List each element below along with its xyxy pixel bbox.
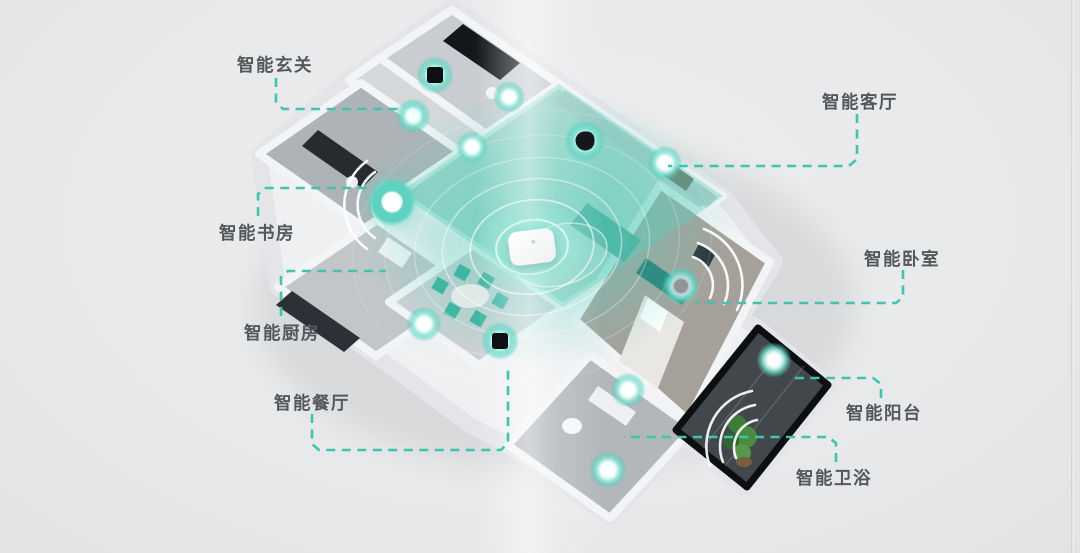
apartment-3d-render [0,0,1080,553]
smart-home-floorplan-scene: H 智能玄关智能客厅智能书房智能厨房智能餐厅智能卧室智能阳台智能卫浴 [0,0,1080,553]
bathroom-toilet [562,418,582,434]
